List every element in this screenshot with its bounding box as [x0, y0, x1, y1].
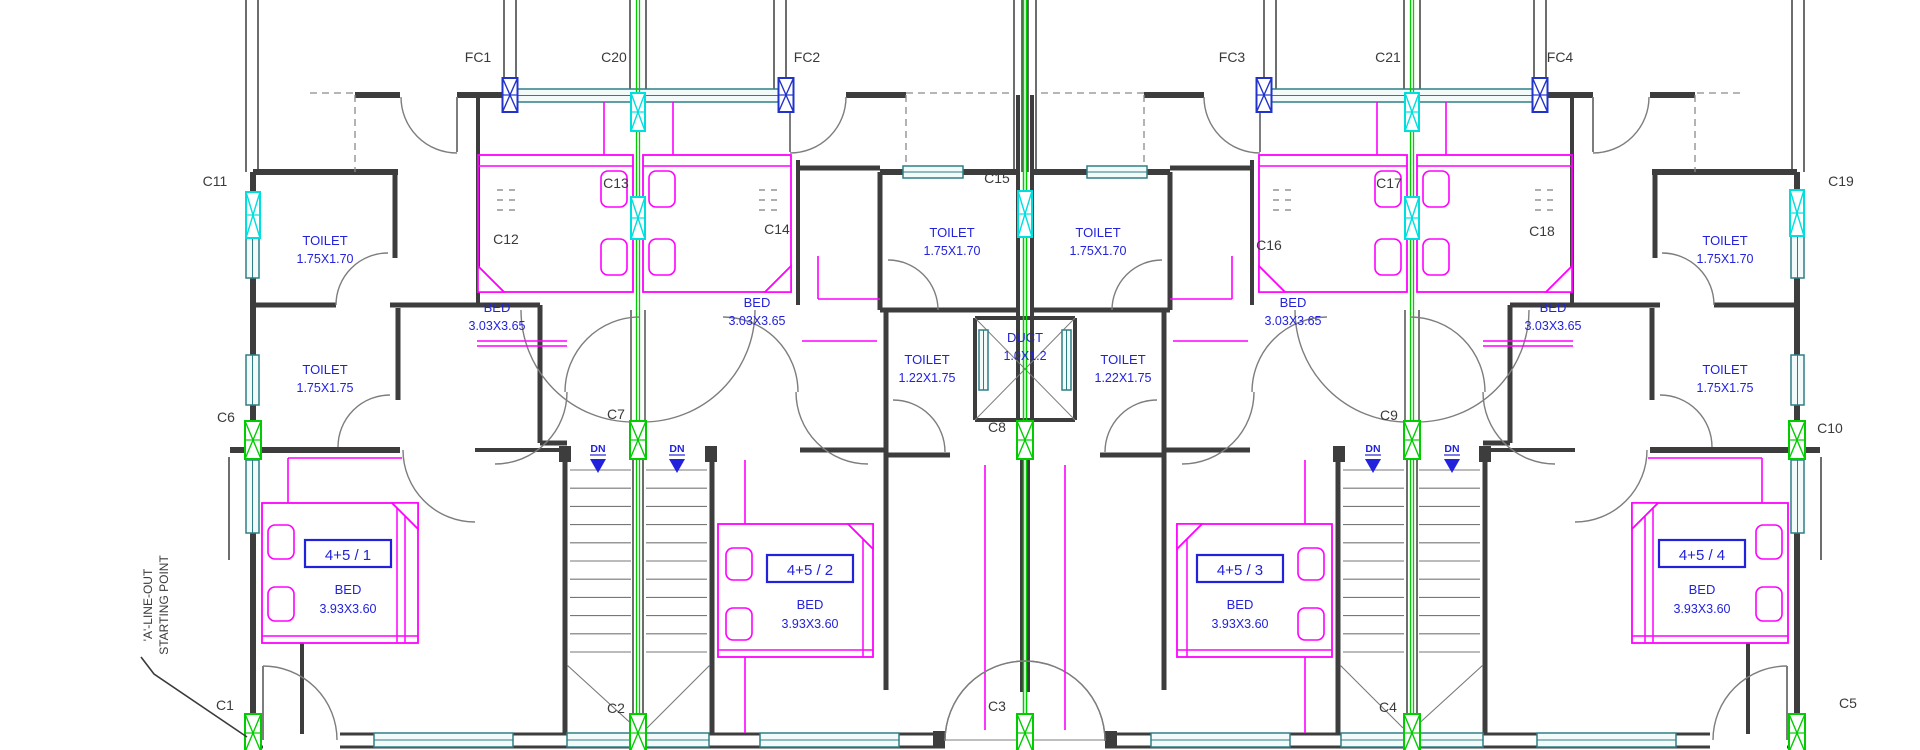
wall-post: [559, 446, 571, 462]
unit-room-dims: 3.93X3.60: [320, 602, 377, 616]
room-name-toilet_right_upper: TOILET: [1702, 233, 1747, 248]
column-marker-c1: [245, 714, 261, 750]
column-label-fc3: FC3: [1219, 49, 1246, 65]
floor-plan-canvas: FC1C20FC2FC3C21FC4C11C13C15C17C19C12C14C…: [0, 0, 1920, 750]
column-marker-c10: [1789, 421, 1805, 459]
room-dims-duct: 1.0X1.2: [1003, 349, 1046, 363]
room-name-toilet_right_lower: TOILET: [1702, 362, 1747, 377]
column-marker-fc3: [1257, 78, 1272, 112]
column-marker-c4: [1404, 714, 1420, 750]
column-label-c12: C12: [493, 231, 519, 247]
column-marker-c3: [1017, 714, 1033, 750]
lineout-annotation-line1: 'A'-LINE-OUT: [141, 568, 155, 641]
stair-down-label: DN: [1365, 443, 1380, 455]
lineout-annotation-line2: STARTING POINT: [157, 555, 171, 655]
room-name-bed_upper_1: BED: [484, 300, 511, 315]
room-dims-bed_upper_2: 3.03X3.65: [729, 314, 786, 328]
column-marker-c21: [1405, 93, 1419, 131]
column-label-fc2: FC2: [794, 49, 821, 65]
column-marker-c19: [1790, 190, 1804, 236]
room-name-toilet_left_upper: TOILET: [302, 233, 347, 248]
unit-room-label: BED: [1227, 597, 1254, 612]
stair-down-label: DN: [590, 443, 605, 455]
column-label-c15: C15: [984, 170, 1010, 186]
room-dims-toilet_center_right_lower: 1.22X1.75: [1095, 371, 1152, 385]
stair-down-label: DN: [1444, 443, 1459, 455]
unit-number-label: 4+5 / 3: [1217, 562, 1263, 579]
wall-post: [1333, 446, 1345, 462]
wall-post: [933, 731, 945, 748]
room-dims-toilet_right_upper: 1.75X1.70: [1697, 252, 1754, 266]
room-name-toilet_left_lower: TOILET: [302, 362, 347, 377]
column-marker-c6: [245, 421, 261, 459]
room-name-bed_upper_4: BED: [1540, 300, 1567, 315]
column-label-c19: C19: [1828, 173, 1854, 189]
column-label-c14: C14: [764, 221, 790, 237]
column-marker-fc4: [1533, 78, 1548, 112]
room-name-bed_upper_3: BED: [1280, 295, 1307, 310]
room-dims-toilet_right_lower: 1.75X1.75: [1697, 381, 1754, 395]
column-label-c3: C3: [988, 698, 1006, 714]
stair-down-label: DN: [669, 443, 684, 455]
unit-room-label: BED: [1689, 582, 1716, 597]
unit-room-dims: 3.93X3.60: [1674, 602, 1731, 616]
column-marker-c13: [631, 197, 645, 239]
column-label-c8: C8: [988, 419, 1006, 435]
unit-room-dims: 3.93X3.60: [1212, 617, 1269, 631]
column-label-c4: C4: [1379, 699, 1397, 715]
column-marker-c15: [1018, 191, 1032, 237]
column-label-fc1: FC1: [465, 49, 492, 65]
room-dims-toilet_center_left_lower: 1.22X1.75: [899, 371, 956, 385]
room-dims-toilet_center_left_upper: 1.75X1.70: [924, 244, 981, 258]
column-label-c5: C5: [1839, 695, 1857, 711]
column-label-c16: C16: [1256, 237, 1282, 253]
column-label-c6: C6: [217, 409, 235, 425]
column-label-c11: C11: [203, 173, 228, 189]
column-marker-c17: [1405, 197, 1419, 239]
room-dims-toilet_left_lower: 1.75X1.75: [297, 381, 354, 395]
column-marker-c11: [246, 192, 260, 238]
room-name-toilet_center_right_upper: TOILET: [1075, 225, 1120, 240]
column-label-c17: C17: [1376, 175, 1402, 191]
column-label-c21: C21: [1375, 49, 1401, 65]
wall-post: [705, 446, 717, 462]
wall-post: [1479, 446, 1491, 462]
unit-room-label: BED: [797, 597, 824, 612]
column-label-c9: C9: [1380, 407, 1398, 423]
column-marker-c9: [1404, 421, 1420, 459]
column-label-c2: C2: [607, 700, 625, 716]
column-marker-c20: [631, 93, 645, 131]
room-dims-bed_upper_1: 3.03X3.65: [469, 319, 526, 333]
wall-post: [1105, 731, 1117, 748]
unit-number-label: 4+5 / 1: [325, 547, 371, 564]
column-marker-fc1: [503, 78, 518, 112]
room-name-bed_upper_2: BED: [744, 295, 771, 310]
column-label-fc4: FC4: [1547, 49, 1574, 65]
column-marker-c5: [1789, 714, 1805, 750]
column-marker-c8: [1017, 421, 1033, 459]
room-dims-bed_upper_4: 3.03X3.65: [1525, 319, 1582, 333]
column-marker-c2: [630, 714, 646, 750]
unit-number-label: 4+5 / 2: [787, 562, 833, 579]
floor-plan-drawing: FC1C20FC2FC3C21FC4C11C13C15C17C19C12C14C…: [0, 0, 1920, 750]
unit-number-label: 4+5 / 4: [1679, 547, 1725, 564]
unit-room-label: BED: [335, 582, 362, 597]
column-marker-c7: [630, 421, 646, 459]
room-name-toilet_center_left_lower: TOILET: [904, 352, 949, 367]
column-label-c13: C13: [603, 175, 629, 191]
column-label-c7: C7: [607, 406, 625, 422]
column-label-c1: C1: [216, 697, 234, 713]
room-name-toilet_center_left_upper: TOILET: [929, 225, 974, 240]
column-label-c18: C18: [1529, 223, 1555, 239]
unit-room-dims: 3.93X3.60: [782, 617, 839, 631]
column-marker-fc2: [779, 78, 794, 112]
column-label-c20: C20: [601, 49, 627, 65]
room-name-duct: DUCT: [1007, 330, 1043, 345]
room-dims-toilet_left_upper: 1.75X1.70: [297, 252, 354, 266]
room-name-toilet_center_right_lower: TOILET: [1100, 352, 1145, 367]
column-label-c10: C10: [1817, 420, 1843, 436]
room-dims-toilet_center_right_upper: 1.75X1.70: [1070, 244, 1127, 258]
room-dims-bed_upper_3: 3.03X3.65: [1265, 314, 1322, 328]
